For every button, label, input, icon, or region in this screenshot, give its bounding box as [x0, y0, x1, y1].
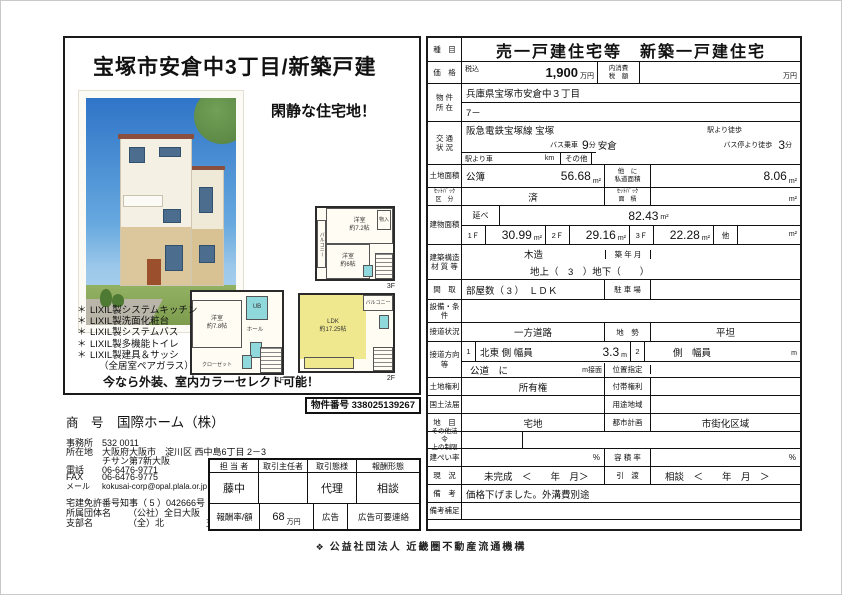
land-register-type: 公簿: [462, 169, 485, 183]
listing-table: 種 目 売一戸建住宅等 新築一戸建住宅 価 格 税込 1,900 万円 内消費 …: [426, 36, 802, 531]
f3-unit: m²: [702, 235, 710, 242]
land-rights-value: 所有権: [462, 378, 605, 395]
feature-item: （全居室ペアガラス）: [99, 361, 194, 372]
road2-number: 2: [631, 342, 645, 361]
company-name-row: 商 号 国際ホーム（株）: [66, 411, 225, 431]
consumption-tax-unit: 万円: [783, 71, 797, 81]
price-value: 1,900: [545, 65, 578, 80]
road1-width-unit: m: [621, 352, 627, 359]
property-number-label: 物件番号: [311, 400, 349, 411]
position-designation-label: 位置指定: [605, 365, 651, 374]
mail-label: メール: [66, 481, 102, 492]
f2-area: 29.16: [586, 228, 616, 242]
coverage-label: 建ぺい率: [428, 449, 462, 466]
location-label: 物 件 所 在: [428, 84, 462, 121]
road-label: 接道状況: [428, 323, 462, 341]
balcony-2f: バルコニー: [363, 295, 393, 311]
row-status: 現 況 未完成 ＜ 年 月＞ 引 渡 相談 ＜ 年 月 ＞: [428, 467, 800, 485]
location-line2: 7－: [462, 103, 800, 121]
km-unit: km: [545, 155, 554, 162]
rail-line: 阪急電鉄宝塚線 宝塚: [466, 123, 554, 137]
fee-amount: 68: [272, 511, 284, 523]
feature-item: LIXIL製システムキッチン: [90, 305, 197, 316]
unit-bath: UB: [246, 296, 268, 320]
setback-area-label: ｾｯﾄﾊﾞｯｸ 面 積: [605, 188, 651, 205]
closet-label: 物入: [377, 210, 391, 230]
house-wing: [190, 168, 224, 286]
header-torihiki-taiyo: 取引態様: [308, 460, 357, 472]
balcony-label: バルコニー: [317, 220, 326, 268]
road1-number: 1: [462, 342, 476, 361]
row-filler: [428, 520, 800, 529]
feature-item: LIXIL製建具＆サッシ: [90, 350, 179, 361]
property-number-box: 物件番号 338025139267: [305, 397, 421, 414]
chimoku-value: 宅地: [462, 414, 605, 431]
row-kokudo: 国土法届 用途地域: [428, 396, 800, 414]
private-road-value: 8.06: [763, 169, 786, 183]
stairs-1f: [260, 347, 282, 373]
hall-label: ホール: [244, 322, 266, 340]
f1-unit: m²: [534, 235, 542, 242]
row-building-area: 建物面積 延べ 82.43 m² 1Ｆ 30.99m² 2Ｆ 29.16m² 3…: [428, 206, 800, 245]
city-planning-value: 市街化区域: [651, 414, 800, 431]
floor-label-2f: 2F: [387, 375, 395, 382]
row-chimoku: 地 目 宅地 都市計画 市街化区域: [428, 414, 800, 432]
feature-list: ＊LIXIL製システムキッチン ＊LIXIL製洗面化粧台 ＊LIXIL製システム…: [77, 305, 197, 372]
room-1f: 洋室 約7.8帖: [192, 300, 242, 348]
flyer-panel: 宝塚市安倉中3丁目/新築戸建 閑静な住宅地！: [63, 36, 421, 395]
price-label: 価 格: [428, 62, 462, 83]
far-label: 容 積 率: [605, 449, 651, 466]
private-road-unit: m²: [789, 178, 797, 185]
total-floor-unit: m²: [660, 214, 668, 221]
busstop-minutes: 3: [778, 138, 785, 152]
setback-area-unit: m²: [789, 196, 797, 203]
agent-fee-type: 相談: [357, 473, 419, 503]
fee-unit: 万円: [287, 517, 301, 527]
status-value: 未完成 ＜ 年 月＞: [462, 467, 605, 484]
attached-rights-label: 付帯権利: [605, 378, 651, 395]
header-tantousha: 担 当 者: [210, 460, 259, 472]
row-type: 種 目 売一戸建住宅等 新築一戸建住宅: [428, 38, 800, 62]
agent-chief: [259, 473, 308, 503]
property-flyer-page: 宝塚市安倉中3丁目/新築戸建 閑静な住宅地！: [0, 0, 842, 595]
f2-unit: m²: [618, 235, 626, 242]
row-other-law: その他法令 上の制限: [428, 432, 800, 449]
branch-row: 支部名（全）北支部: [66, 516, 224, 529]
agent-person: 藤中: [210, 473, 259, 503]
kokudo-label: 国土法届: [428, 396, 462, 413]
front-door: [147, 259, 161, 285]
other-transport-label: その他: [560, 153, 591, 164]
road2-direction: 側 幅員: [673, 345, 711, 359]
private-road-label: 他 に 私道面積: [605, 165, 651, 187]
consumption-tax-label: 内消費 税 額: [597, 62, 640, 83]
land-area-value: 56.68: [561, 169, 591, 183]
land-rights-label: 土地権利: [428, 378, 462, 395]
other-law-label: その他法令 上の制限: [428, 432, 462, 448]
remarks-label: 備 考: [428, 485, 462, 502]
f3-label: 3Ｆ: [630, 226, 654, 244]
property-number-value: 338025139267: [352, 400, 415, 411]
footer-org-name: 公益社団法人 近畿圏不動産流通機構: [330, 542, 527, 553]
zoning-label: 用途地域: [605, 396, 651, 413]
coverage-pct: %: [593, 453, 600, 462]
land-area-unit: m²: [593, 178, 601, 185]
agent-table-values: 藤中 代理 相談: [210, 473, 419, 504]
agent-mode: 代理: [308, 473, 357, 503]
bus-minutes: 9: [582, 138, 589, 152]
floor-plan-2f: LDK 約17.25帖 バルコニー 2F: [298, 293, 395, 373]
row-remarks: 備 考 価格下げました。外溝費別途: [428, 485, 800, 503]
city-planning-label: 都市計画: [605, 414, 651, 431]
terrain-label: 地 勢: [605, 323, 651, 341]
structure-label: 建築構造 材 質 等: [428, 245, 462, 279]
ad-value: 広告可要連絡: [348, 504, 419, 529]
row-transport: 交 通 状 況 阪急電鉄宝塚線 宝塚 駅より徒歩 バス乗車 9 分 安倉 バス停…: [428, 122, 800, 165]
other-floor-unit: m²: [789, 231, 797, 238]
transport-label: 交 通 状 況: [428, 122, 462, 164]
row-equipment: 設備・条件: [428, 300, 800, 323]
feature-item: LIXIL製多機能トイレ: [90, 339, 179, 350]
remarks-value: 価格下げました。外溝費別途: [462, 485, 800, 502]
bus-ride-label: バス乗車: [550, 140, 578, 150]
road-type: 公道 に: [470, 363, 508, 377]
header-hoshu-keitai: 報酬形態: [357, 460, 419, 472]
floor-plan-3f: バルコニー 洋室 約7.2帖 物入 洋室 約6帖 3F: [315, 206, 395, 281]
company-block: 物件番号 338025139267 商 号 国際ホーム（株） 事務所532 00…: [63, 397, 421, 533]
road-direction-label: 接道方向 等: [428, 342, 462, 377]
bullet-icon: ＊: [77, 305, 90, 316]
f1-label: 1Ｆ: [462, 226, 486, 244]
branch-label: 支部名: [66, 516, 128, 529]
floor-label-3f: 3F: [387, 283, 395, 290]
status-label: 現 況: [428, 467, 462, 484]
feature-item: LIXIL製洗面化粧台: [90, 316, 169, 327]
handover-value: 相談 ＜ 年 月 ＞: [651, 467, 800, 484]
row-land-rights: 土地権利 所有権 付帯権利: [428, 378, 800, 396]
f3-area: 22.28: [670, 228, 700, 242]
row-road-direction: 接道方向 等 1 北東 側 幅員 3.3 m 2 側 幅員 m: [428, 342, 800, 378]
stairs-2f: [373, 347, 393, 371]
type-value: 売一戸建住宅等 新築一戸建住宅: [462, 38, 800, 61]
f1-area: 30.99: [502, 228, 532, 242]
row-road: 接道状況 一方道路 地 勢 平坦: [428, 323, 800, 342]
handover-label: 引 渡: [605, 467, 651, 484]
price-unit: 万円: [580, 71, 594, 81]
layout-label: 間 取: [428, 280, 462, 299]
land-area-label: 土地面積: [428, 165, 462, 187]
row-layout: 間 取 部屋数（ 3 ） ＬＤＫ 駐 車 場: [428, 280, 800, 300]
header-torihiki-shunin: 取引主任者: [259, 460, 308, 472]
row-coverage: 建ぺい率 % 容 積 率 %: [428, 449, 800, 467]
mail-value: kokusai-corp@opal.plala.or.jp: [102, 482, 207, 491]
company-name-label: 商 号: [66, 416, 104, 430]
type-label: 種 目: [428, 38, 462, 61]
building-area-label: 建物面積: [428, 206, 462, 244]
remarks2-label: 備考補足: [428, 503, 462, 519]
stairs-3f: [375, 253, 393, 279]
location-line1: 兵庫県宝塚市安倉中３丁目: [462, 84, 800, 103]
built-date-label: 築 年 月: [605, 250, 651, 259]
setback-value: 済: [462, 188, 605, 205]
row-price: 価 格 税込 1,900 万円 内消費 税 額 万円: [428, 62, 800, 84]
row-land-area: 土地面積 公簿 56.68 m² 他 に 私道面積 8.06 m²: [428, 165, 800, 188]
company-name: 国際ホーム（株）: [117, 415, 225, 430]
terrain-value: 平坦: [651, 323, 800, 341]
floors-above-below: 地上（ 3 ）地下（ ）: [462, 263, 800, 279]
promo-text: 今なら外装、室内カラーセレクト可能！: [103, 373, 319, 390]
busstop-minutes-unit: 分: [785, 140, 792, 150]
bullet-icon: ＊: [77, 350, 90, 361]
row-remarks2: 備考補足: [428, 503, 800, 520]
road2-width-unit: m: [791, 350, 797, 357]
agent-table-fee-row: 報酬率/額 68万円 広告 広告可要連絡: [210, 504, 419, 529]
far-pct: %: [789, 453, 796, 462]
road1-direction: 北東 側 幅員: [476, 345, 533, 359]
bus-minutes-unit: 分: [589, 140, 596, 150]
bullet-icon: ＊: [77, 316, 90, 327]
agent-table-header: 担 当 者 取引主任者 取引態様 報酬形態: [210, 460, 419, 473]
road-value: 一方道路: [462, 323, 605, 341]
floor-plan-1f: 洋室 約7.8帖 UB ホール クローゼット 1F: [190, 290, 284, 375]
tree-graphic: [194, 98, 236, 144]
agent-table: 担 当 者 取引主任者 取引態様 報酬形態 藤中 代理 相談 報酬率/額 68万…: [208, 458, 421, 531]
walk-from-station-label: 駅より徒歩: [707, 125, 742, 135]
structure-value: 木造: [462, 247, 605, 261]
fee-label: 報酬率/額: [210, 504, 260, 529]
catchphrase: 閑静な住宅地！: [271, 100, 376, 121]
parking-label: 駐 車 場: [605, 280, 651, 299]
other-floor-label: 他: [714, 226, 738, 244]
walk-from-busstop-label: バス停より徒歩: [723, 140, 772, 150]
car-from-station-label: 駅より車: [465, 154, 493, 164]
row-setback: ｾｯﾄﾊﾞｯｸ 区 分 済 ｾｯﾄﾊﾞｯｸ 面 積 m²: [428, 188, 800, 206]
price-tax-note: 税込: [465, 64, 479, 74]
layout-value: 部屋数（ 3 ） ＬＤＫ: [462, 280, 605, 299]
branch-value: （全）北: [128, 518, 164, 528]
total-floor-label: 延べ: [473, 210, 489, 221]
bus-stop-name: 安倉: [598, 138, 617, 152]
road-frontage: m接面: [582, 365, 602, 375]
flyer-title: 宝塚市安倉中3丁目/新築戸建: [93, 51, 377, 81]
total-floor-area: 82.43: [628, 209, 658, 223]
row-location: 物 件 所 在 兵庫県宝塚市安倉中３丁目 7－: [428, 84, 800, 122]
closet-1f-label: クローゼット: [194, 359, 240, 371]
reins-logo-icon: ❖: [316, 542, 324, 553]
footer: ❖公益社団法人 近畿圏不動産流通機構: [1, 538, 841, 553]
setback-label: ｾｯﾄﾊﾞｯｸ 区 分: [428, 188, 462, 205]
equipment-label: 設備・条件: [428, 300, 462, 322]
ldk-room: LDK 約17.25帖: [300, 295, 366, 359]
house-body: [120, 136, 192, 286]
row-structure: 建築構造 材 質 等 木造 築 年 月 地上（ 3 ）地下（ ）: [428, 245, 800, 280]
ad-label: 広告: [314, 504, 348, 529]
feature-item: LIXIL製システムバス: [90, 327, 178, 338]
fee-value: 68万円: [260, 504, 314, 529]
mail-row: メールkokusai-corp@opal.plala.or.jp: [66, 481, 207, 492]
bullet-icon: ＊: [77, 327, 90, 338]
f2-label: 2Ｆ: [546, 226, 570, 244]
bullet-icon: ＊: [77, 339, 90, 350]
road1-width: 3.3: [602, 345, 619, 359]
